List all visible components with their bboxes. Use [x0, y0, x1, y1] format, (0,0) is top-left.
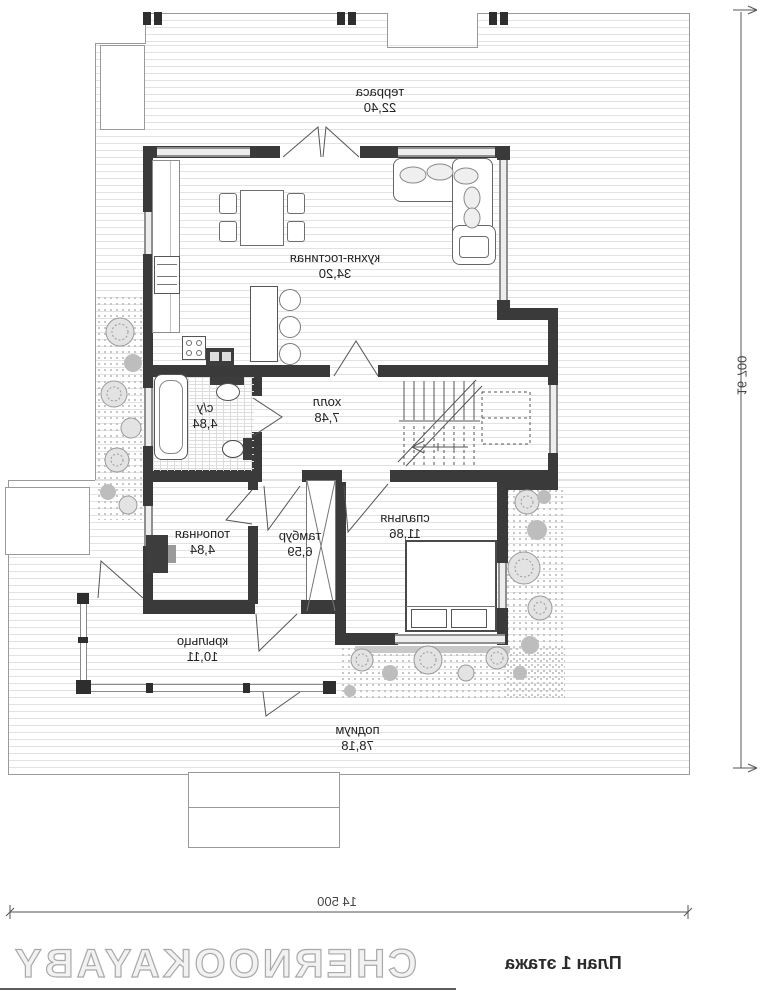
room-label-vestibule: тамбур 6,59: [252, 528, 348, 561]
vestibule-door-swing: [264, 486, 300, 530]
room-name: крыльцо: [177, 633, 228, 648]
garden-plants-bottom: [344, 646, 527, 697]
room-area: 4,84: [160, 416, 250, 432]
room-name: терраса: [356, 84, 404, 99]
room-area: 34,20: [235, 266, 435, 282]
room-label-boiler: топочная 4,84: [150, 526, 255, 559]
bathroom-door-swing: [253, 398, 282, 436]
room-name: холл: [313, 394, 341, 409]
room-label-podium: подиум 78,18: [300, 722, 415, 755]
stairs: [398, 380, 530, 466]
garden-plants-left: [100, 318, 142, 514]
room-area: 22,40: [300, 100, 460, 116]
room-name: тамбур: [279, 528, 322, 543]
room-area: 6,59: [252, 544, 348, 560]
linework-layer: [0, 0, 766, 1000]
room-name: с/у: [197, 400, 214, 415]
sofa-cushions: [400, 164, 480, 228]
page-title: План 1 этажа: [505, 953, 622, 974]
room-name: подиум: [335, 722, 379, 737]
room-area: 10,11: [140, 649, 265, 665]
room-label-hall: холл 7,48: [282, 394, 372, 427]
room-name: топочная: [175, 526, 230, 541]
room-name: кухня-гостиная: [290, 250, 380, 265]
terrace-door-swing: [283, 127, 359, 157]
dimension-bottom-label: 14 500: [277, 894, 397, 909]
room-label-terrace: терраса 22,40: [300, 84, 460, 117]
room-area: 7,48: [282, 410, 372, 426]
floor-plan-canvas: терраса 22,40 кухня-гостиная 34,20 холл …: [0, 0, 766, 1000]
room-label-porch: крыльцо 10,11: [140, 633, 265, 666]
room-area: 11,86: [350, 526, 460, 542]
room-name: спальня: [380, 510, 429, 525]
room-label-bathroom: с/у 4,84: [160, 400, 250, 433]
kitchen-door-swing: [334, 341, 378, 376]
room-label-kitchen-living: кухня-гостиная 34,20: [235, 250, 435, 283]
dimension-right-label: 16 700: [735, 346, 750, 406]
room-area: 78,18: [300, 738, 415, 754]
watermark-text: CHERNOOKAYABY: [12, 942, 417, 987]
room-label-bedroom: спальня 11,86: [350, 510, 460, 543]
footer-rule: [0, 988, 456, 990]
garden-plants-right: [508, 490, 552, 654]
room-area: 4,84: [150, 542, 255, 558]
